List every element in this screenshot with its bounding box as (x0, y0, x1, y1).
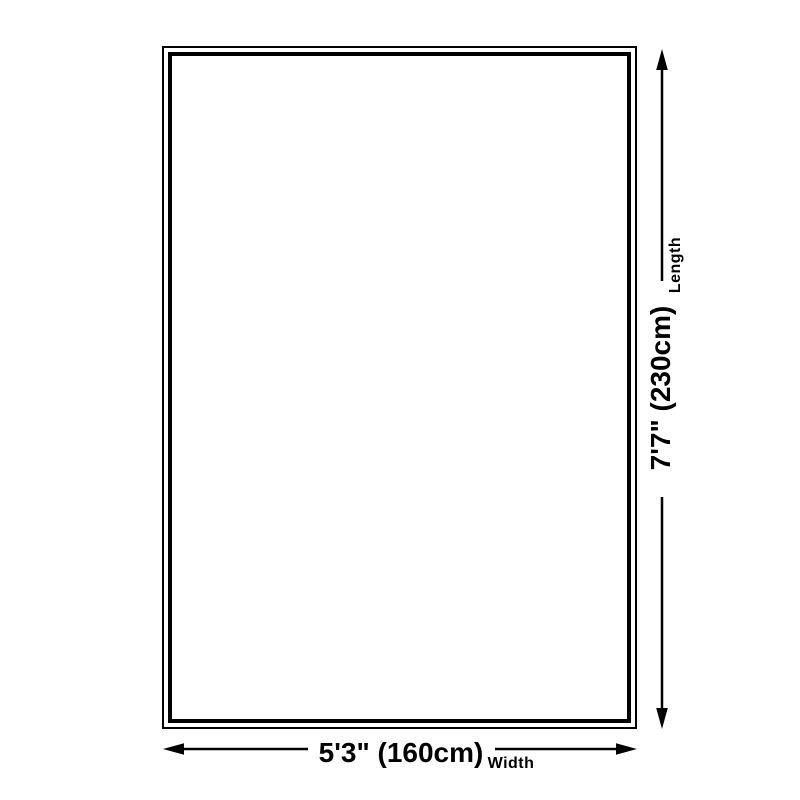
rug-outline-inner (168, 52, 631, 723)
length-arrow-up-head (656, 49, 668, 70)
width-label: Width (488, 755, 535, 773)
length-label: Length (667, 237, 685, 293)
length-arrow-down-head (656, 708, 668, 729)
width-arrow-left-head (163, 743, 184, 755)
rug-outline-outer (162, 46, 637, 729)
length-value: 7'7" (230cm) (645, 306, 677, 471)
width-value: 5'3" (160cm) (319, 737, 484, 769)
width-arrow-right-head (616, 743, 637, 755)
rug-size-diagram: Length 7'7" (230cm) 5'3" (160cm) Width (0, 0, 800, 800)
